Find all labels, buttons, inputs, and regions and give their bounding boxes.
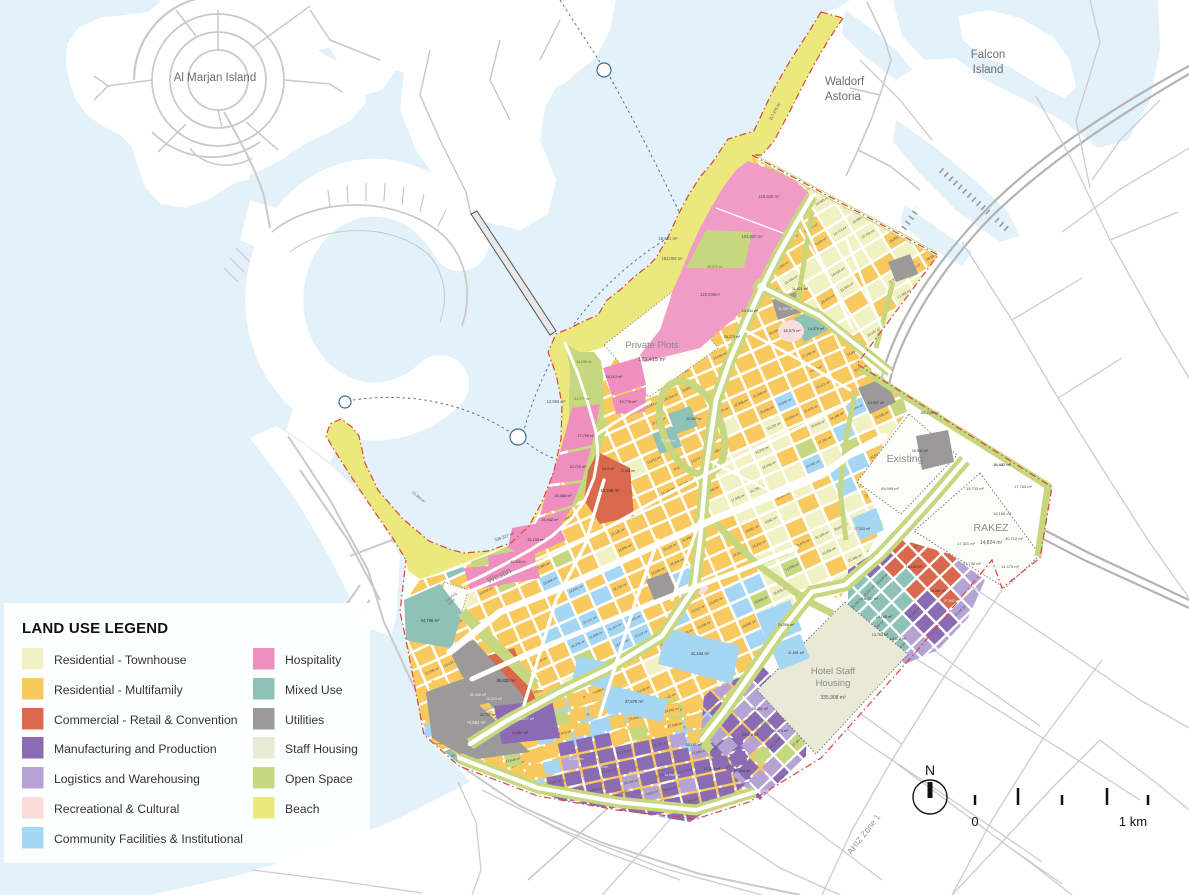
svg-text:Island: Island [973, 64, 1004, 76]
svg-text:22,737 m²: 22,737 m² [480, 713, 497, 717]
svg-text:30,712 m²: 30,712 m² [1005, 536, 1024, 541]
svg-text:103,950 m²: 103,950 m² [741, 234, 763, 239]
svg-text:16,183 m²: 16,183 m² [906, 565, 923, 569]
svg-text:17,944 m²: 17,944 m² [734, 769, 751, 773]
svg-text:5,515 m²: 5,515 m² [602, 467, 615, 471]
svg-text:37,876 m²: 37,876 m² [625, 699, 644, 704]
svg-text:Astoria: Astoria [825, 91, 861, 103]
svg-text:20,113 m²: 20,113 m² [606, 375, 624, 379]
svg-text:14,334 m²: 14,334 m² [742, 309, 759, 313]
svg-text:13,168 m²: 13,168 m² [876, 615, 893, 619]
svg-text:123,936m²: 123,936m² [700, 292, 721, 297]
svg-text:Al Marjan Island: Al Marjan Island [174, 72, 256, 84]
svg-text:12,892 m²: 12,892 m² [547, 399, 566, 404]
svg-text:17,315 m²: 17,315 m² [704, 767, 721, 771]
svg-text:Residential - Townhouse: Residential - Townhouse [54, 653, 187, 667]
svg-text:335,908 m²: 335,908 m² [820, 695, 846, 701]
svg-text:17,333 m²: 17,333 m² [854, 527, 871, 531]
svg-text:Hospitality: Hospitality [285, 653, 342, 667]
svg-text:13,997 m²: 13,997 m² [868, 401, 885, 405]
svg-text:11,691 m²: 11,691 m² [788, 651, 805, 655]
svg-text:Hotel Staff: Hotel Staff [811, 666, 856, 677]
svg-text:Falcon: Falcon [971, 49, 1006, 61]
svg-text:17,709 m²: 17,709 m² [577, 434, 595, 438]
svg-text:20,228 m²: 20,228 m² [758, 789, 775, 793]
svg-text:N: N [925, 762, 935, 778]
svg-text:Waldorf: Waldorf [825, 76, 865, 88]
svg-text:13,763 m²: 13,763 m² [872, 633, 889, 637]
svg-text:16,737 m²: 16,737 m² [862, 597, 879, 601]
svg-text:23,378 m²: 23,378 m² [742, 733, 759, 737]
svg-text:44,286 m²: 44,286 m² [576, 360, 592, 364]
svg-text:Community Facilities & Institu: Community Facilities & Institutional [54, 832, 243, 846]
svg-text:Logistics and Warehousing: Logistics and Warehousing [54, 772, 200, 786]
svg-text:11,148 m²: 11,148 m² [621, 469, 635, 473]
svg-text:Recreational & Cultural: Recreational & Cultural [54, 802, 179, 816]
svg-text:12,090 m²: 12,090 m² [568, 757, 584, 761]
svg-text:11,367 m²: 11,367 m² [778, 307, 795, 311]
svg-text:14,567 m²: 14,567 m² [512, 731, 529, 735]
svg-text:51,077 m²: 51,077 m² [574, 397, 590, 401]
svg-text:20,101 m²: 20,101 m² [686, 743, 703, 747]
svg-text:RAKEZ: RAKEZ [973, 522, 1009, 534]
svg-text:27,942 m²: 27,942 m² [944, 599, 961, 603]
svg-text:Commercial - Retail & Conventi: Commercial - Retail & Convention [54, 713, 238, 727]
svg-text:Housing: Housing [816, 678, 851, 689]
svg-text:49,999 m²: 49,999 m² [881, 486, 900, 491]
svg-text:42,026 m²: 42,026 m² [510, 560, 526, 564]
svg-text:19,778 m²: 19,778 m² [619, 400, 637, 404]
svg-text:17,738 m²: 17,738 m² [963, 561, 982, 566]
svg-text:16,886 m²: 16,886 m² [628, 771, 644, 775]
svg-text:13,072 m²: 13,072 m² [890, 637, 907, 641]
svg-text:29,051 m²: 29,051 m² [752, 707, 769, 711]
svg-text:18,943 m²: 18,943 m² [912, 449, 929, 453]
svg-text:15,710 m²: 15,710 m² [569, 465, 587, 469]
svg-text:18,521 m²: 18,521 m² [659, 236, 678, 241]
svg-text:18,575 m²: 18,575 m² [783, 329, 801, 333]
svg-text:65,820 m²: 65,820 m² [497, 678, 516, 683]
svg-text:Utilities: Utilities [285, 713, 324, 727]
svg-text:22,023 m²: 22,023 m² [486, 697, 503, 701]
svg-text:17,763 m²: 17,763 m² [1014, 484, 1033, 489]
svg-text:24,056 m²: 24,056 m² [778, 623, 795, 627]
svg-text:14,375 m²: 14,375 m² [808, 327, 825, 331]
svg-text:29,277 m²: 29,277 m² [518, 717, 535, 721]
svg-text:LAND USE LEGEND: LAND USE LEGEND [22, 620, 168, 637]
svg-text:Residential - Multifamily: Residential - Multifamily [54, 683, 184, 697]
svg-text:Mixed Use: Mixed Use [285, 683, 343, 697]
svg-text:15,732 m²: 15,732 m² [966, 486, 985, 491]
svg-text:41,244 m²: 41,244 m² [691, 651, 710, 656]
svg-text:17,311 m²: 17,311 m² [957, 541, 975, 546]
svg-text:1 km: 1 km [1119, 814, 1147, 829]
svg-text:16,903 m²: 16,903 m² [664, 773, 680, 777]
svg-text:0: 0 [971, 814, 978, 829]
svg-text:14,581 m²: 14,581 m² [930, 589, 947, 593]
svg-text:44,796 m²: 44,796 m² [421, 618, 440, 623]
svg-text:32,153 m²: 32,153 m² [527, 538, 545, 542]
svg-text:14,475 m²: 14,475 m² [1001, 564, 1020, 569]
svg-text:11,921 m²: 11,921 m² [792, 287, 809, 291]
svg-text:15,374 m²: 15,374 m² [772, 729, 789, 733]
svg-text:16,482 m²: 16,482 m² [993, 462, 1012, 467]
svg-text:173,415 m²: 173,415 m² [638, 357, 666, 363]
svg-text:52,400 m²: 52,400 m² [470, 693, 487, 697]
svg-text:74,884 m²: 74,884 m² [467, 720, 486, 725]
svg-text:Staff Housing: Staff Housing [285, 742, 358, 756]
svg-text:10,796 m²: 10,796 m² [592, 765, 608, 769]
svg-text:20,067 m²: 20,067 m² [686, 417, 702, 421]
svg-text:Beach: Beach [285, 802, 320, 816]
svg-text:15,485 m²: 15,485 m² [554, 494, 572, 498]
svg-text:118,828 m²: 118,828 m² [759, 194, 780, 199]
svg-text:19,158 m²: 19,158 m² [993, 511, 1012, 516]
svg-text:Manufacturing and Production: Manufacturing and Production [54, 742, 217, 756]
svg-text:95,271 m²: 95,271 m² [707, 265, 723, 269]
svg-text:14,824 m²: 14,824 m² [980, 540, 1003, 546]
svg-text:56,248 m²: 56,248 m² [601, 488, 620, 493]
svg-text:17,499 m²: 17,499 m² [660, 439, 676, 443]
svg-text:15,942 m²: 15,942 m² [541, 518, 559, 522]
svg-text:Open Space: Open Space [285, 772, 353, 786]
svg-text:Private Plots: Private Plots [625, 340, 679, 351]
svg-text:26,273 m²: 26,273 m² [724, 335, 741, 339]
svg-text:Existing: Existing [887, 453, 924, 465]
svg-text:88,786 m²: 88,786 m² [921, 410, 940, 415]
svg-text:183,005 m²: 183,005 m² [661, 256, 683, 261]
